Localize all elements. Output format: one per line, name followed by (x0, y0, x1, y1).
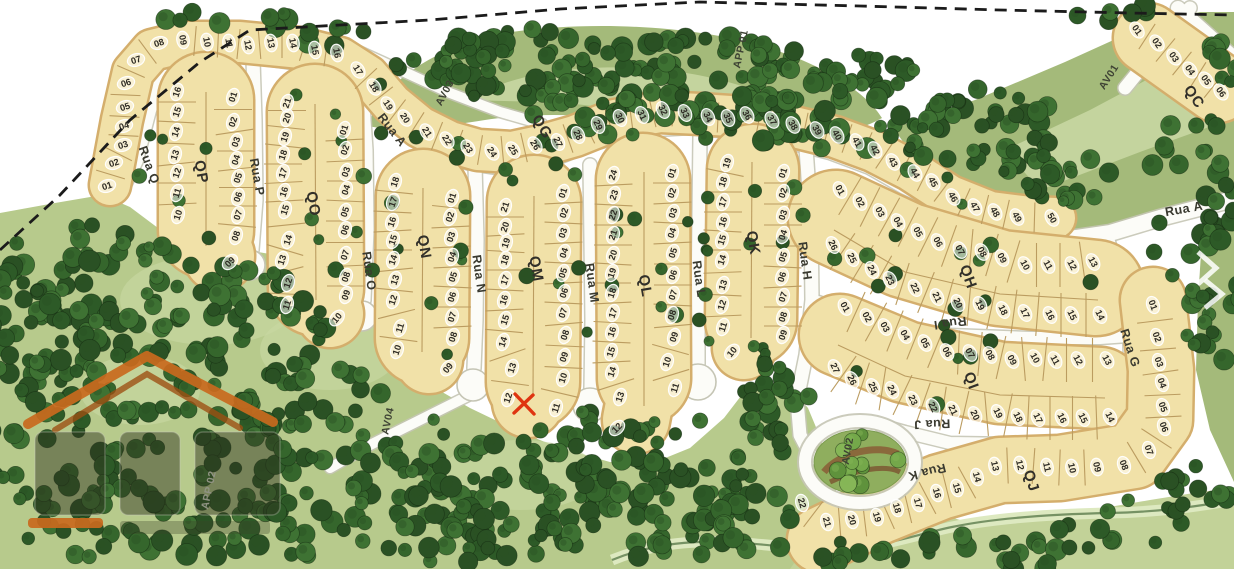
lot-number: 10 (201, 36, 213, 48)
site-plan-svg: 0102030405060708091011121314151617181920… (0, 0, 1234, 569)
lot-number: 15 (309, 44, 321, 56)
street-label-rua-j: Rua J (913, 416, 950, 431)
lot-number: 12 (1014, 459, 1026, 471)
lot-number: 11 (1041, 461, 1053, 473)
lot-number: 12 (242, 39, 254, 51)
lot-number: 13 (265, 37, 277, 49)
lot-number: 16 (331, 47, 343, 59)
site-plan-map: 0102030405060708091011121314151617181920… (0, 0, 1234, 569)
lot-number: 10 (1066, 462, 1078, 474)
lot-number: 09 (177, 34, 189, 46)
lot-number: 13 (989, 460, 1001, 472)
lot-number: 09 (1091, 461, 1103, 473)
